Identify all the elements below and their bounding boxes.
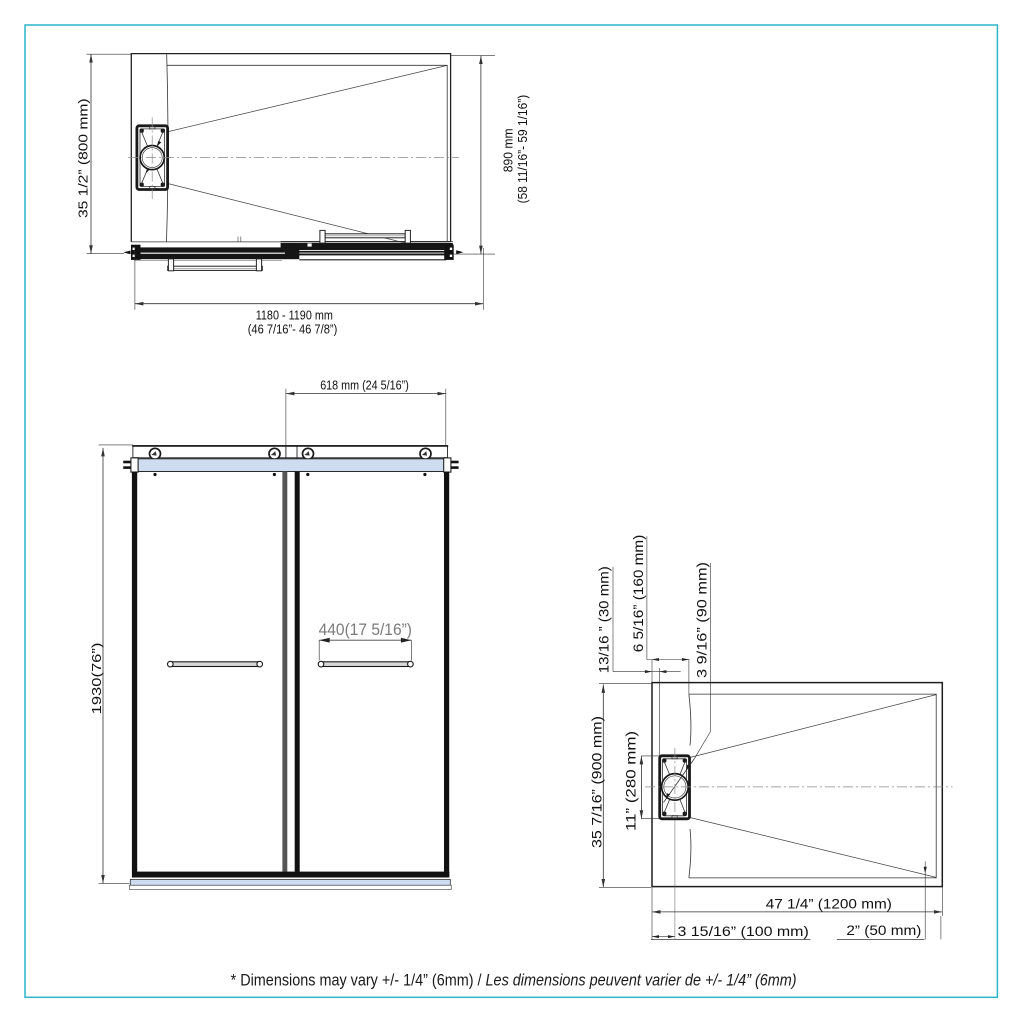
svg-text:1180 - 1190 mm: 1180 - 1190 mm: [256, 308, 333, 322]
svg-text:11” (280 mm): 11” (280 mm): [623, 731, 639, 831]
svg-text:35 1/2” (800 mm): 35 1/2” (800 mm): [76, 98, 90, 218]
svg-text:13/16 ” (30 mm): 13/16 ” (30 mm): [596, 566, 612, 673]
svg-text:2” (50 mm): 2” (50 mm): [846, 922, 921, 938]
svg-text:* Dimensions may vary +/- 1/4”: * Dimensions may vary +/- 1/4” (6mm) / L…: [231, 970, 797, 989]
svg-text:3 9/16” (90 mm): 3 9/16” (90 mm): [693, 562, 709, 678]
svg-text:618 mm (24 5/16”): 618 mm (24 5/16”): [320, 379, 409, 393]
svg-text:(58 11/16”- 59 1/16”): (58 11/16”- 59 1/16”): [516, 95, 530, 204]
svg-text:6 5/16” (160 mm): 6 5/16” (160 mm): [630, 535, 646, 653]
svg-text:1930(76”): 1930(76”): [90, 643, 104, 715]
svg-text:440(17 5/16”): 440(17 5/16”): [319, 620, 412, 639]
svg-text:890 mm: 890 mm: [501, 128, 515, 172]
svg-text:35 7/16” (900 mm): 35 7/16” (900 mm): [588, 716, 604, 848]
svg-text:3 15/16” (100 mm): 3 15/16” (100 mm): [678, 923, 809, 939]
svg-text:47 1/4” (1200 mm): 47 1/4” (1200 mm): [766, 896, 892, 912]
svg-text:(46 7/16”- 46 7/8”): (46 7/16”- 46 7/8”): [248, 322, 338, 336]
